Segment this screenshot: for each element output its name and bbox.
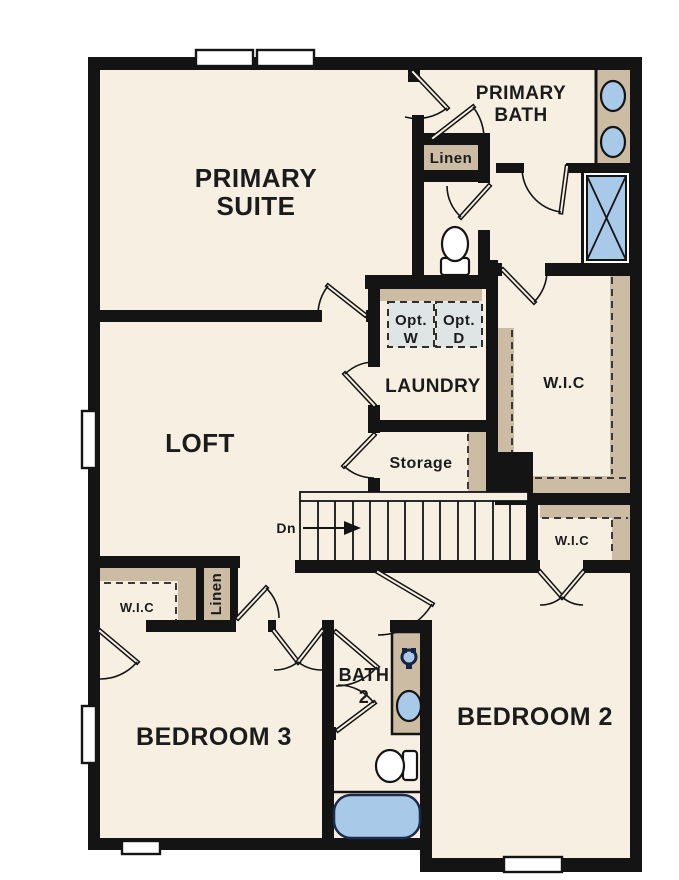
primary-sink-1 (601, 81, 625, 111)
wall-suite-loft (100, 310, 322, 322)
primary-sink-2 (601, 127, 625, 157)
washer-label-line1: Opt. (395, 312, 427, 329)
primary-toilet (441, 227, 469, 275)
wic-bedroom3-shelf-right (178, 568, 196, 620)
floor-plan-drawing: Dn (0, 0, 679, 880)
primary-bath-label-line1: PRIMARY (476, 83, 566, 104)
bedroom3-label: BEDROOM 3 (136, 723, 292, 751)
wall-wic-hall-bottom-right (583, 560, 642, 573)
bedroom2-label: BEDROOM 2 (457, 703, 613, 731)
linen-upper-label: Linen (430, 150, 473, 167)
primary-suite-label-line2: SUITE (216, 191, 295, 221)
wall-hall-bottom-b (146, 620, 236, 632)
wall-wic-top-left (486, 263, 502, 276)
wall-linen-top (412, 133, 484, 145)
wall-linen-lower-right (230, 568, 238, 620)
wic-primary-label: W.I.C (543, 375, 585, 392)
wall-hall-top (88, 556, 240, 568)
washer-label-line2: W (404, 330, 419, 347)
stairs-direction-label: Dn (276, 520, 296, 536)
bath2-tub (334, 795, 420, 838)
dryer-label-line1: Opt. (443, 312, 475, 329)
linen-lower-label: Linen (208, 573, 225, 616)
wall-laundry-storage (376, 420, 490, 432)
wall-hall-bottom-a (88, 620, 98, 632)
wall-laundry-top (365, 275, 490, 289)
wall-chase (495, 452, 533, 494)
dryer-label-line2: D (453, 330, 464, 347)
wall-linen-bottom (412, 170, 484, 182)
window-bedroom3-left (82, 706, 96, 763)
wic-bedroom3-label: W.I.C (120, 600, 154, 615)
bath2-label-line1: BATH (339, 665, 390, 685)
wall-linen-lower-left (196, 568, 204, 620)
wall-stairs-bottom (295, 560, 538, 573)
bath2-label-line2: 2 (359, 687, 370, 707)
window-primary-suite-2 (257, 50, 314, 66)
laundry-counter (380, 289, 482, 301)
storage-shelf (468, 432, 486, 492)
stairs-rail (300, 492, 528, 501)
bath2-sink (397, 691, 421, 721)
window-loft (82, 411, 96, 468)
primary-suite-label-line1: PRIMARY (195, 163, 317, 193)
wall-bedroom2-left (420, 620, 432, 858)
storage-label: Storage (389, 455, 452, 472)
bath2-toilet (376, 750, 417, 782)
wall-bath2-stub (326, 727, 336, 740)
wall-bath-mid-left (496, 163, 524, 173)
window-bedroom3-bottom (122, 841, 160, 854)
window-bedroom2 (504, 857, 562, 872)
primary-shower (581, 170, 632, 266)
wall-linen-right (478, 133, 490, 183)
wall-exterior-top (88, 57, 642, 70)
wic-hall-shelf-right (612, 505, 630, 560)
primary-bath-label-line2: BATH (494, 105, 547, 126)
loft-label: LOFT (165, 428, 235, 458)
window-primary-suite-1 (196, 50, 253, 66)
wall-laundry-left-upper (368, 285, 380, 367)
laundry-label: LAUNDRY (385, 376, 481, 397)
wic-hall-label: W.I.C (555, 533, 589, 548)
floor-plan-canvas: Dn (0, 0, 679, 880)
optional-appliances: Opt. W Opt. D (388, 302, 482, 347)
